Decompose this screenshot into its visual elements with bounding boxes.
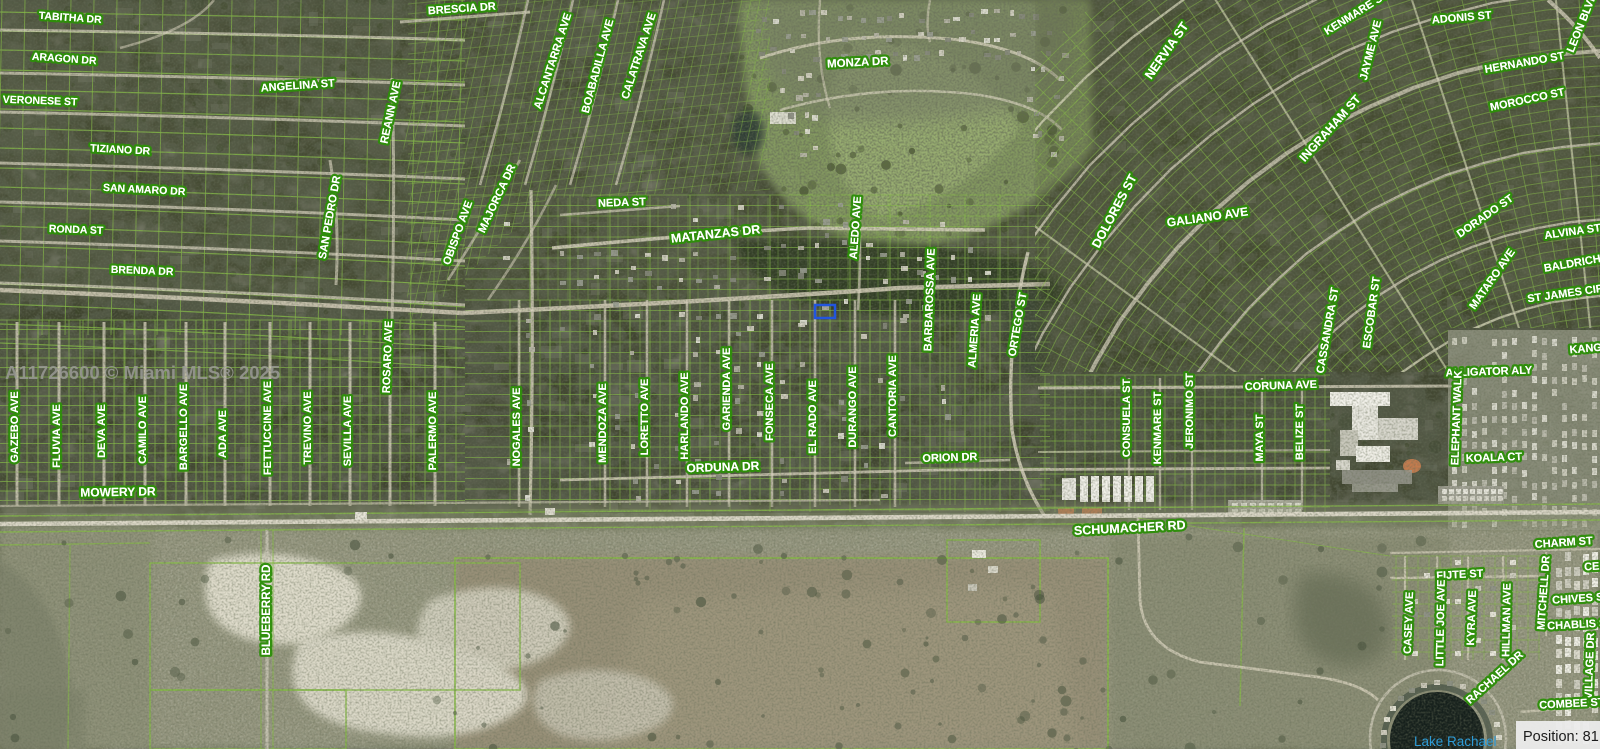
svg-text:HILLMAN AVE: HILLMAN AVE bbox=[1500, 583, 1513, 657]
svg-text:KENMARE ST: KENMARE ST bbox=[1152, 391, 1164, 464]
svg-text:KANG: KANG bbox=[1569, 342, 1600, 357]
svg-text:MENDOZA AVE: MENDOZA AVE bbox=[597, 383, 609, 463]
svg-text:DURANGO AVE: DURANGO AVE bbox=[847, 366, 859, 447]
svg-text:RONDA ST: RONDA ST bbox=[49, 223, 104, 237]
svg-text:LORETTO AVE: LORETTO AVE bbox=[639, 379, 651, 456]
svg-text:FLUVIA AVE: FLUVIA AVE bbox=[51, 404, 63, 468]
svg-text:A11726600 © Miami MLS® 2025: A11726600 © Miami MLS® 2025 bbox=[5, 362, 280, 383]
svg-text:KOALA CT: KOALA CT bbox=[1465, 451, 1522, 465]
svg-text:BELIZE ST: BELIZE ST bbox=[1294, 404, 1306, 461]
svg-text:HARLANDO AVE: HARLANDO AVE bbox=[679, 372, 691, 459]
svg-text:BARGELLO AVE: BARGELLO AVE bbox=[178, 384, 190, 470]
svg-text:MOWERY DR: MOWERY DR bbox=[80, 484, 156, 499]
svg-text:Lake Rachael: Lake Rachael bbox=[1414, 734, 1497, 749]
svg-text:CORUNA AVE: CORUNA AVE bbox=[1245, 379, 1318, 394]
svg-text:CANTORIA AVE: CANTORIA AVE bbox=[887, 355, 899, 437]
svg-text:SEVILLA AVE: SEVILLA AVE bbox=[342, 396, 354, 467]
svg-text:TREVINO AVE: TREVINO AVE bbox=[302, 391, 314, 464]
svg-text:BRENDA DR: BRENDA DR bbox=[111, 264, 174, 278]
svg-text:CONSUELA ST: CONSUELA ST bbox=[1121, 379, 1133, 458]
svg-text:ADA AVE: ADA AVE bbox=[217, 410, 229, 458]
svg-text:EL RADO AVE: EL RADO AVE bbox=[807, 380, 819, 454]
svg-text:FONSECA AVE: FONSECA AVE bbox=[764, 363, 776, 441]
svg-text:CASEY AVE: CASEY AVE bbox=[1402, 592, 1416, 655]
svg-text:JERONIMO ST: JERONIMO ST bbox=[1184, 373, 1196, 449]
svg-text:GAZEBO AVE: GAZEBO AVE bbox=[9, 391, 21, 463]
svg-text:KYRA AVE: KYRA AVE bbox=[1465, 590, 1479, 646]
svg-text:DEVA AVE: DEVA AVE bbox=[96, 404, 108, 458]
svg-text:PALERMO AVE: PALERMO AVE bbox=[427, 392, 439, 471]
svg-text:ORION DR: ORION DR bbox=[922, 451, 977, 465]
svg-text:MAYA ST: MAYA ST bbox=[1254, 414, 1266, 461]
svg-text:Position: 81.5: Position: 81.5 bbox=[1523, 729, 1600, 745]
svg-text:ORDUNA DR: ORDUNA DR bbox=[686, 459, 760, 476]
svg-text:NOGALES AVE: NOGALES AVE bbox=[511, 388, 523, 467]
svg-text:VILLAGE DR: VILLAGE DR bbox=[1583, 632, 1597, 699]
svg-text:NEDA ST: NEDA ST bbox=[598, 196, 647, 210]
svg-text:ROSARO AVE: ROSARO AVE bbox=[381, 320, 396, 393]
svg-text:CAMILO AVE: CAMILO AVE bbox=[137, 396, 149, 464]
svg-text:FETTUCCINE AVE: FETTUCCINE AVE bbox=[262, 381, 274, 475]
svg-text:LITTLE JOE AVE: LITTLE JOE AVE bbox=[1434, 579, 1448, 666]
svg-text:GARIENDA AVE: GARIENDA AVE bbox=[721, 348, 733, 431]
svg-text:CE: CE bbox=[1584, 560, 1600, 573]
svg-text:BLUEBERRY RD: BLUEBERRY RD bbox=[261, 565, 273, 656]
